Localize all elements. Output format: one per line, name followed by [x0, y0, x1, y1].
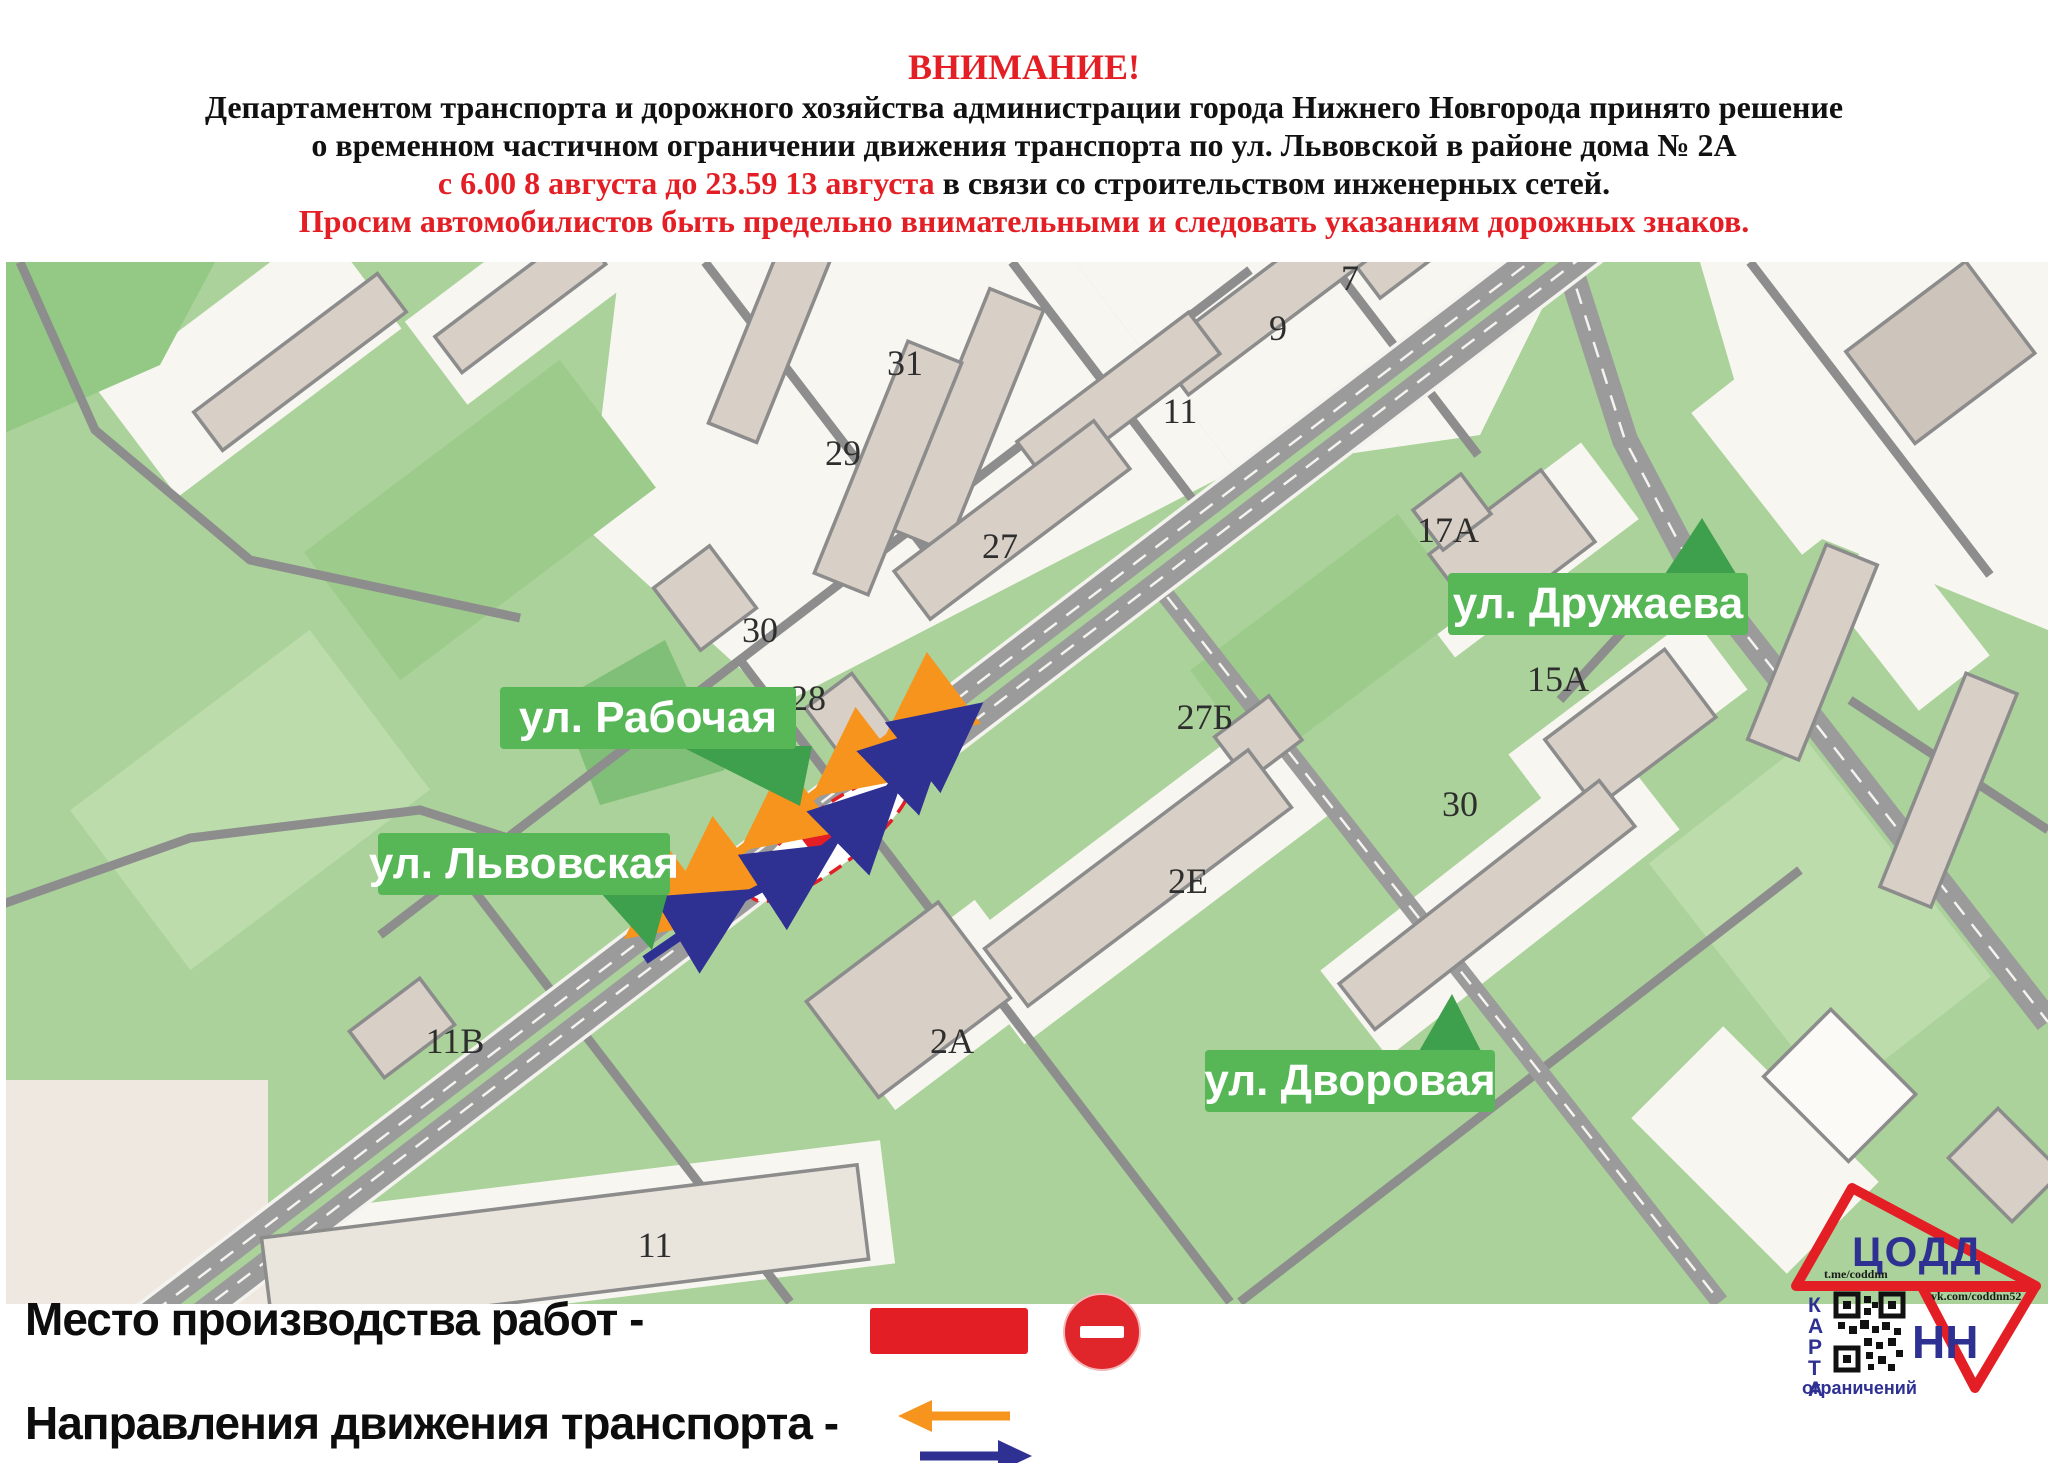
- legend-row-directions: Направления движения транспорта -: [25, 1400, 1225, 1458]
- building-number: 2Е: [1168, 861, 1208, 901]
- svg-text:ул. Дружаева: ул. Дружаева: [1453, 579, 1744, 628]
- building-number: 29: [825, 433, 861, 473]
- codd-logo: ЦОДД t.me/coddnn vk.com/coddnn52 КАР ТА …: [1786, 1176, 2048, 1452]
- ogranicheniy-label: ограничений: [1802, 1378, 1917, 1398]
- poster: ВНИМАНИЕ! Департаментом транспорта и дор…: [0, 0, 2048, 1463]
- svg-text:К: К: [1808, 1294, 1821, 1317]
- svg-text:Т: Т: [1808, 1357, 1821, 1380]
- nn-title: НН: [1912, 1316, 1978, 1368]
- building-number: 31: [887, 343, 923, 383]
- work-zone-icon: [870, 1290, 1210, 1385]
- svg-text:Р: Р: [1808, 1336, 1822, 1359]
- legend-directions-label: Направления движения транспорта -: [25, 1397, 838, 1449]
- svg-text:А: А: [1808, 1315, 1823, 1338]
- building-number: 30: [1442, 784, 1478, 824]
- svg-text:ул. Львовская: ул. Львовская: [369, 839, 679, 888]
- legend-row-workzone: Место производства работ -: [25, 1296, 1225, 1354]
- codd-vk: vk.com/coddnn52: [1931, 1289, 2021, 1303]
- qr-code: [1836, 1294, 1903, 1371]
- codd-telegram: t.me/coddnn: [1824, 1267, 1888, 1281]
- svg-text:ул. Дворовая: ул. Дворовая: [1204, 1056, 1495, 1105]
- building-number: 9: [1269, 308, 1287, 348]
- direction-arrows-icon: [880, 1394, 1100, 1463]
- building-number: 11: [1163, 391, 1198, 431]
- building-number: 30: [742, 610, 778, 650]
- legend-workzone-label: Место производства работ -: [25, 1293, 643, 1345]
- building-number: 11В: [426, 1021, 485, 1061]
- building-number: 11: [638, 1225, 673, 1265]
- building-number: 27Б: [1177, 697, 1234, 737]
- legend: Место производства работ - Направления д…: [25, 1296, 1225, 1463]
- building-number: 15А: [1527, 659, 1589, 699]
- svg-text:ул. Рабочая: ул. Рабочая: [519, 693, 777, 742]
- building-number: 7: [1341, 258, 1359, 298]
- building-number: 2А: [930, 1021, 974, 1061]
- building-number: 27: [982, 526, 1018, 566]
- building-number: 17А: [1417, 510, 1479, 550]
- city-map: 7 9 11 31 29 27 30 28 17А 15А 27Б 30 2Е …: [0, 0, 2048, 1463]
